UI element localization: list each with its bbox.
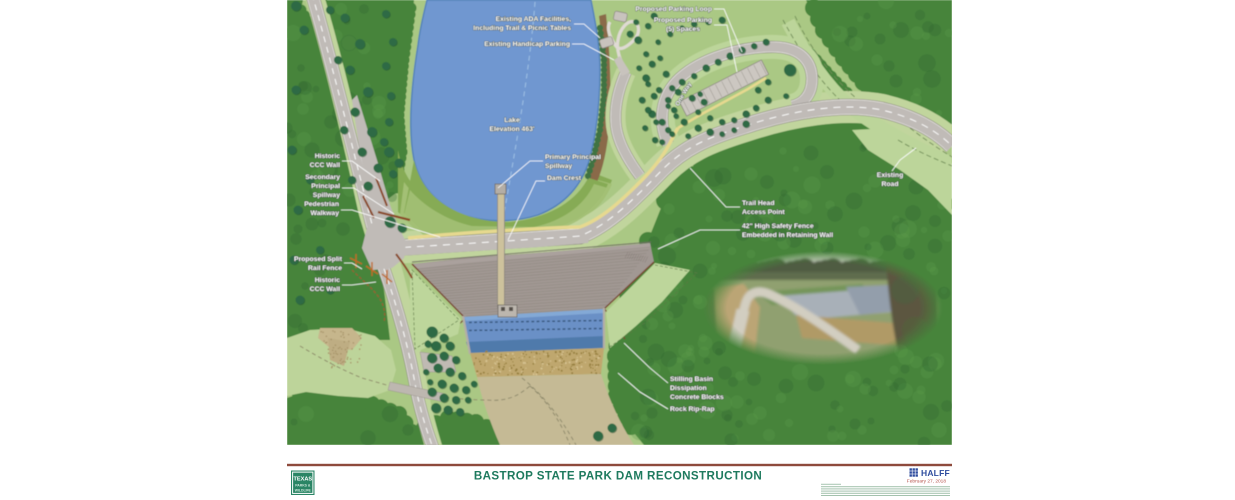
svg-text:Including Trail & Picnic Table: Including Trail & Picnic Tables xyxy=(473,25,571,32)
svg-text:Dam Crest: Dam Crest xyxy=(547,175,582,182)
svg-text:Spillway: Spillway xyxy=(313,192,340,199)
svg-text:TEXAS: TEXAS xyxy=(293,477,312,483)
svg-text:CCC Wall: CCC Wall xyxy=(310,286,340,293)
svg-text:42" High Safety Fence: 42" High Safety Fence xyxy=(742,223,814,230)
svg-text:Walkway: Walkway xyxy=(311,210,340,217)
svg-text:Principal: Principal xyxy=(311,183,340,190)
svg-text:Historic: Historic xyxy=(315,277,341,284)
svg-text:February 27, 2018: February 27, 2018 xyxy=(907,479,947,485)
svg-text:Pedestrian: Pedestrian xyxy=(304,201,339,208)
svg-text:Proposed Split: Proposed Split xyxy=(294,256,343,263)
svg-text:Primary Principal: Primary Principal xyxy=(545,154,601,161)
svg-text:Road: Road xyxy=(882,181,899,188)
svg-text:HALFF: HALFF xyxy=(921,468,950,478)
svg-text:Stilling Basin: Stilling Basin xyxy=(670,376,713,383)
svg-text:Existing ADA Facilities,: Existing ADA Facilities, xyxy=(496,16,572,23)
svg-text:Trail Head: Trail Head xyxy=(742,200,775,207)
svg-text:Proposed Parking Loop: Proposed Parking Loop xyxy=(635,6,712,13)
svg-text:Lake: Lake xyxy=(504,117,520,124)
svg-text:WILDLIFE: WILDLIFE xyxy=(295,489,312,493)
svg-text:CCC Wall: CCC Wall xyxy=(310,162,340,169)
svg-text:Proposed Parking: Proposed Parking xyxy=(654,17,712,24)
svg-text:Rock Rip-Rap: Rock Rip-Rap xyxy=(670,406,715,413)
svg-text:Existing Handicap Parking: Existing Handicap Parking xyxy=(484,41,570,48)
svg-text:PARKS &: PARKS & xyxy=(295,484,311,488)
svg-text:Secondary: Secondary xyxy=(305,174,340,181)
svg-text:Historic: Historic xyxy=(315,153,341,160)
svg-text:Concrete Blocks: Concrete Blocks xyxy=(670,394,724,401)
svg-text:(5) Spaces: (5) Spaces xyxy=(666,26,700,33)
svg-text:Spillway: Spillway xyxy=(545,163,572,170)
svg-text:Embedded in Retaining Wall: Embedded in Retaining Wall xyxy=(742,232,833,239)
svg-text:BASTROP STATE PARK DAM RECONST: BASTROP STATE PARK DAM RECONSTRUCTION xyxy=(474,470,762,483)
svg-text:Existing: Existing xyxy=(877,172,903,179)
svg-text:Access Point: Access Point xyxy=(742,209,785,216)
svg-text:Dissipation: Dissipation xyxy=(670,385,707,392)
svg-text:Elevation 463': Elevation 463' xyxy=(489,126,534,133)
svg-text:Rail Fence: Rail Fence xyxy=(308,265,342,272)
